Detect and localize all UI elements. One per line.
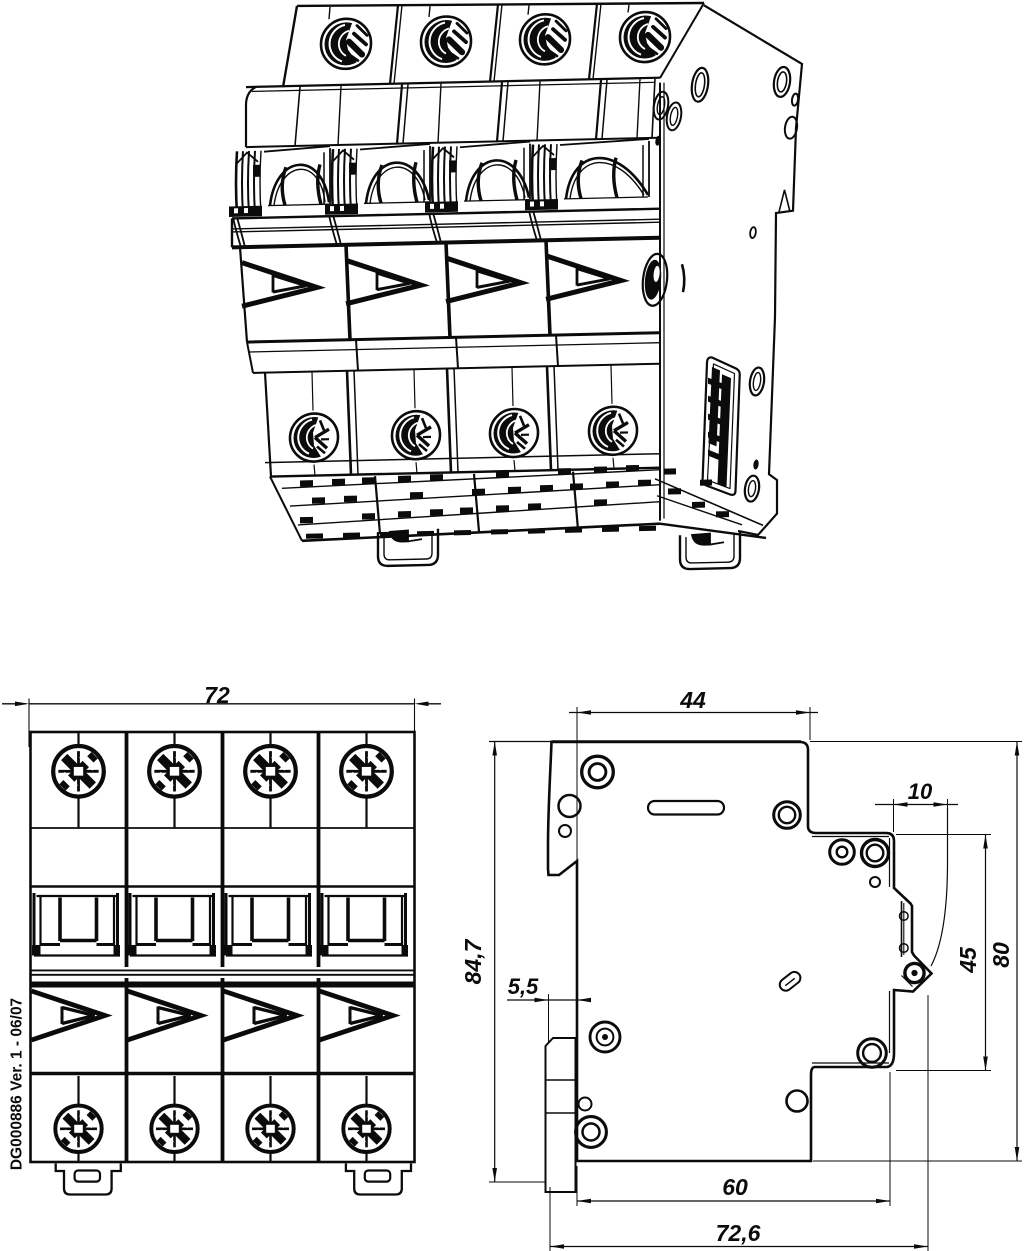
svg-text:84,7: 84,7: [460, 938, 486, 984]
svg-text:44: 44: [679, 687, 706, 713]
svg-text:DG000886 Ver. 1 - 06/07: DG000886 Ver. 1 - 06/07: [9, 998, 26, 1170]
svg-text:72: 72: [204, 682, 230, 708]
svg-text:60: 60: [722, 1174, 748, 1200]
svg-text:10: 10: [908, 779, 933, 804]
svg-text:80: 80: [988, 942, 1014, 968]
svg-text:5,5: 5,5: [508, 974, 539, 999]
svg-text:72,6: 72,6: [716, 1220, 761, 1246]
svg-text:45: 45: [955, 946, 981, 974]
